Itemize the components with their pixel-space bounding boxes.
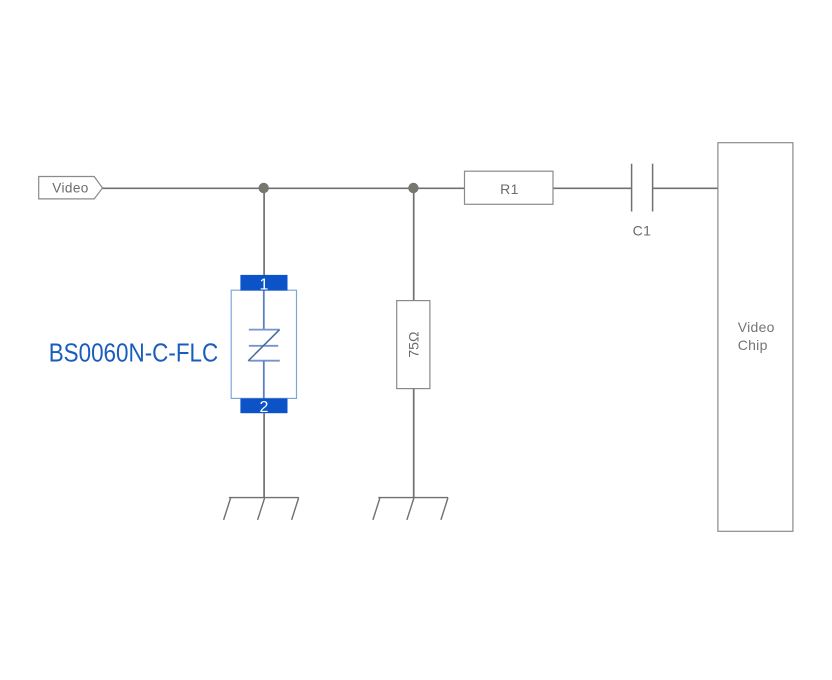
svg-text:75Ω: 75Ω xyxy=(405,332,421,358)
svg-text:Chip: Chip xyxy=(738,337,768,353)
svg-text:Video: Video xyxy=(52,181,89,196)
svg-text:R1: R1 xyxy=(500,181,519,197)
svg-text:Video: Video xyxy=(738,319,775,335)
svg-text:C1: C1 xyxy=(633,223,652,239)
svg-text:1: 1 xyxy=(260,277,269,294)
svg-text:BS0060N-C-FLC: BS0060N-C-FLC xyxy=(49,338,219,368)
